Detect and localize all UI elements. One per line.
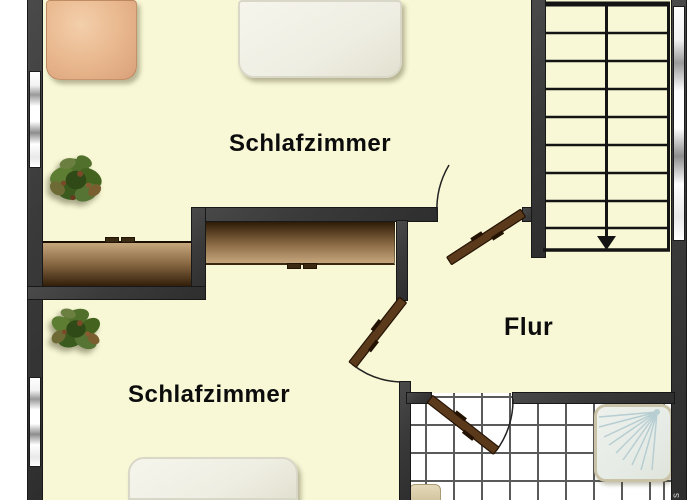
door-leaf	[349, 297, 407, 367]
shower-spray-icon	[599, 409, 660, 470]
door-swing-arc	[437, 165, 449, 214]
door-swing-arc	[353, 365, 401, 383]
door-leaf	[447, 209, 526, 264]
room-label-bedroom2: Schlafzimmer	[128, 381, 290, 409]
room-label-bedroom1: Schlafzimmer	[229, 130, 391, 158]
door-bathroom	[426, 393, 513, 456]
floor-plan: Schlafzimmer Schlafzimmer Flur s	[0, 0, 700, 500]
door-leaf	[427, 395, 499, 454]
stairs-direction-arrow	[597, 236, 616, 250]
watermark-text: s	[671, 493, 682, 498]
room-label-hall: Flur	[504, 313, 553, 342]
door-bedroom1	[437, 165, 527, 267]
stairs	[543, 4, 670, 250]
door-bedroom2	[347, 295, 409, 382]
plan-linework	[0, 0, 700, 500]
door-swing-arc	[496, 399, 513, 451]
